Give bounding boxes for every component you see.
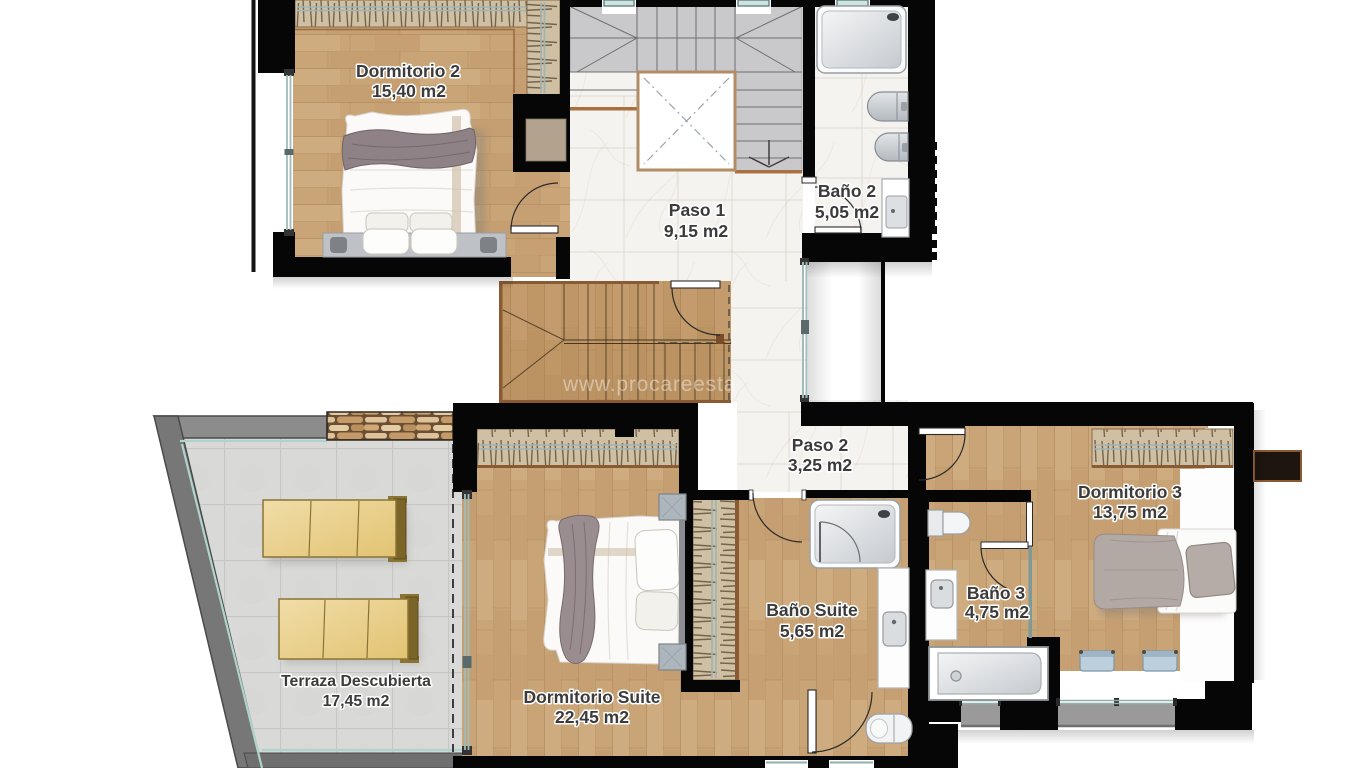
svg-text:4,75 m2: 4,75 m2 [965, 602, 1029, 622]
svg-text:Dormitorio Suite: Dormitorio Suite [523, 687, 660, 707]
svg-text:5,05 m2: 5,05 m2 [815, 202, 879, 222]
svg-text:3,25 m2: 3,25 m2 [788, 455, 852, 475]
svg-text:Dormitorio 2: Dormitorio 2 [356, 61, 460, 81]
svg-text:Paso 2: Paso 2 [792, 435, 849, 455]
svg-text:Dormitorio 3: Dormitorio 3 [1078, 482, 1182, 502]
svg-text:Paso 1: Paso 1 [669, 200, 726, 220]
svg-text:Terraza Descubierta: Terraza Descubierta [281, 673, 431, 690]
svg-text:17,45 m2: 17,45 m2 [323, 693, 390, 710]
svg-text:Baño 2: Baño 2 [818, 181, 877, 201]
svg-text:15,40 m2: 15,40 m2 [372, 81, 446, 101]
svg-text:13,75 m2: 13,75 m2 [1093, 502, 1167, 522]
svg-text:5,65 m2: 5,65 m2 [780, 621, 844, 641]
svg-text:Baño 3: Baño 3 [967, 583, 1026, 603]
svg-text:22,45 m2: 22,45 m2 [555, 707, 629, 727]
svg-text:9,15 m2: 9,15 m2 [664, 221, 728, 241]
svg-text:Baño Suite: Baño Suite [766, 600, 858, 620]
svg-text:www.procareesta: www.procareesta [562, 373, 736, 396]
